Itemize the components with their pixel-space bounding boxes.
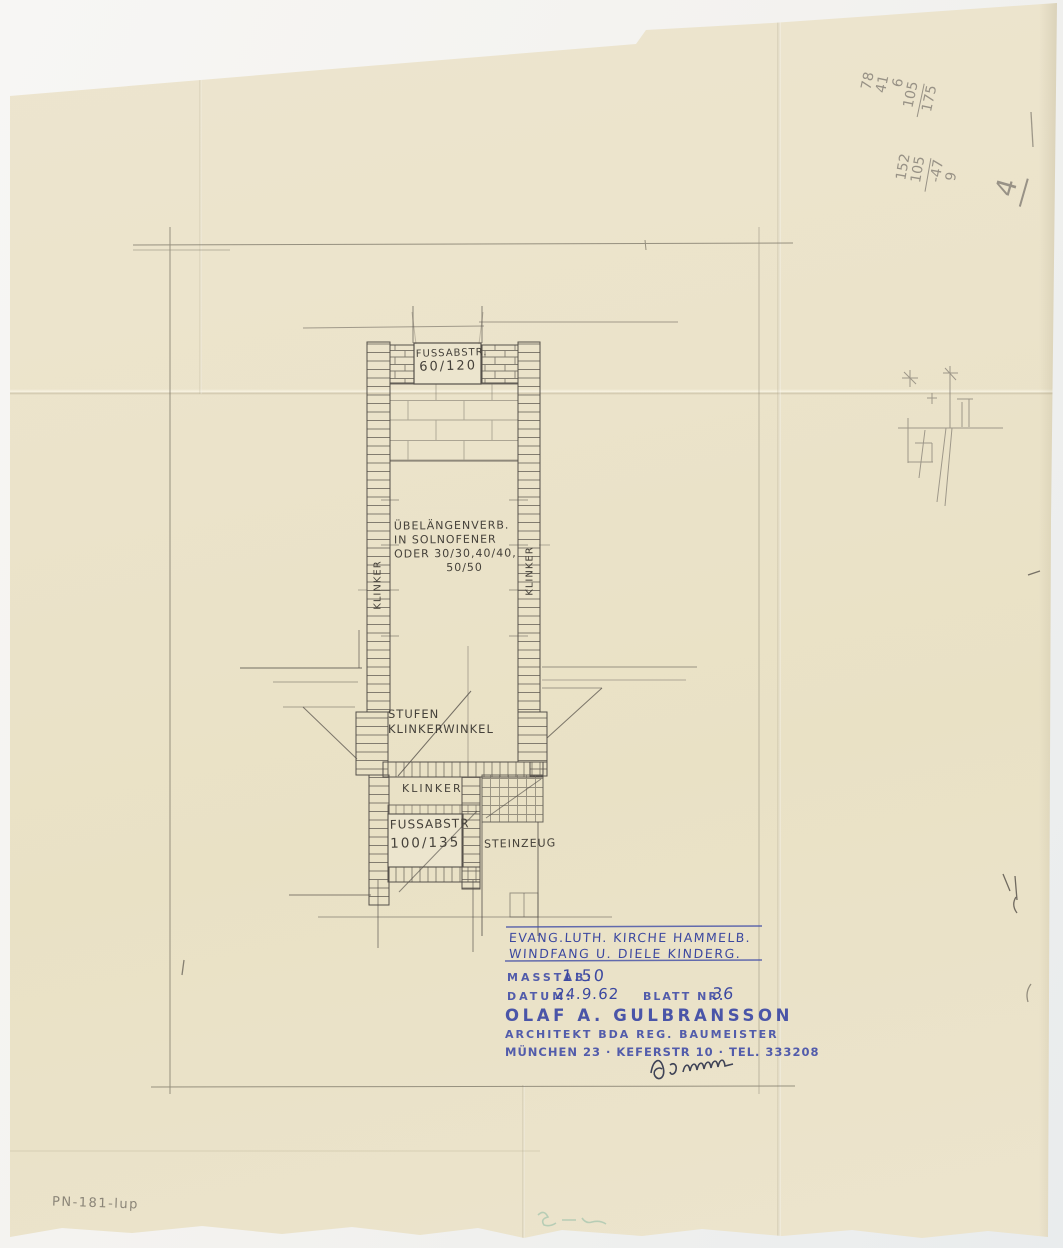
- masstab-value: 1:50: [561, 966, 606, 985]
- signature: [651, 1060, 733, 1078]
- paving-note: ÜBELÄNGENVERB. IN SOLNOFENER ODER 30/30,…: [394, 518, 517, 575]
- stufen-label: STUFEN KLINKERWINKEL: [388, 707, 494, 737]
- stufen-line2: KLINKERWINKEL: [388, 722, 494, 737]
- inventory-number: PN-181-lup: [52, 1194, 139, 1212]
- note-line3: ODER 30/30,40/40,: [394, 546, 517, 561]
- note-line1: ÜBELÄNGENVERB.: [394, 518, 517, 533]
- architect-title: ARCHITEKT BDA REG. BAUMEISTER: [505, 1028, 779, 1041]
- mat-bottom-label: FUSSABSTR 100/135: [390, 814, 470, 853]
- green-archival-mark: [538, 1212, 606, 1225]
- stufen-line1: STUFEN: [388, 707, 494, 722]
- klinker-bottom-label: KLINKER: [402, 782, 463, 795]
- note-line2: IN SOLNOFENER: [394, 532, 517, 547]
- klinker-right-label: KLINKER: [525, 546, 536, 595]
- mat-bottom-line2: 100/135: [390, 833, 470, 853]
- project-title-line1: EVANG.LUTH. KIRCHE HAMMELB.: [509, 930, 752, 945]
- project-title-line2: WINDFANG U. DIELE KINDERG.: [509, 946, 742, 961]
- mat-top-line2: 60/120: [416, 358, 480, 375]
- stray-pencil-marks: [182, 112, 1040, 1002]
- architect-address: MÜNCHEN 23 · KEFERSTR 10 · TEL. 333208: [505, 1045, 819, 1059]
- mat-bottom-line1: FUSSABSTR: [390, 814, 470, 834]
- note-line4: 50/50: [394, 560, 517, 575]
- architect-name: OLAF A. GULBRANSSON: [505, 1006, 793, 1025]
- klinker-left-label: KLINKER: [373, 560, 384, 609]
- blatt-value: 36: [711, 984, 735, 1003]
- scanned-drawing-page: FUSSABSTR. 60/120 ÜBELÄNGENVERB. IN SOLN…: [0, 0, 1063, 1248]
- steinzeug-label: STEINZEUG: [484, 836, 556, 850]
- corner-detail-sketch: [898, 366, 1003, 506]
- datum-value: 24.9.62: [554, 985, 620, 1003]
- mat-top-label: FUSSABSTR. 60/120: [416, 347, 481, 375]
